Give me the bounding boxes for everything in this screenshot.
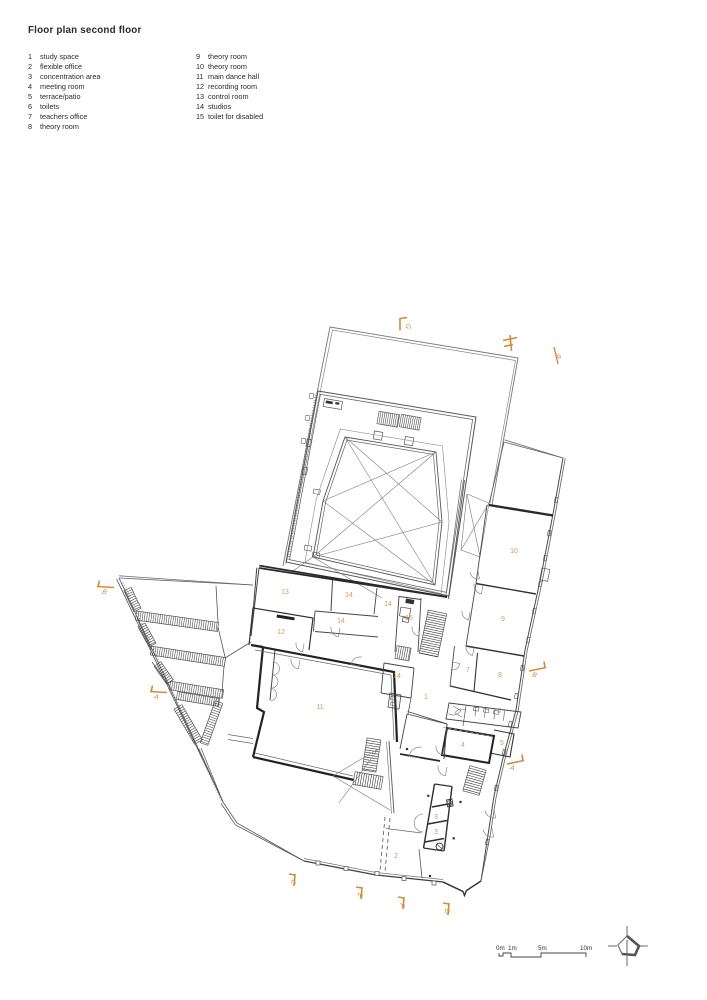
- svg-text:9: 9: [501, 616, 505, 623]
- svg-text:15: 15: [405, 615, 413, 622]
- svg-text:2: 2: [394, 853, 398, 860]
- svg-text:5: 5: [500, 740, 504, 747]
- svg-text:1: 1: [424, 694, 428, 701]
- svg-text:14: 14: [393, 673, 401, 680]
- svg-text:0m: 0m: [496, 945, 505, 952]
- svg-text:10m: 10m: [580, 945, 592, 952]
- svg-text:8: 8: [498, 672, 502, 679]
- svg-text:3: 3: [434, 814, 438, 821]
- svg-text:3: 3: [434, 829, 438, 836]
- svg-text:7: 7: [466, 667, 470, 674]
- svg-text:13: 13: [281, 589, 289, 596]
- svg-text:10: 10: [510, 548, 518, 555]
- svg-text:14: 14: [345, 592, 353, 599]
- svg-text:5m: 5m: [538, 945, 547, 952]
- svg-text:6: 6: [497, 708, 501, 715]
- svg-text:4: 4: [461, 742, 465, 749]
- svg-text:14: 14: [337, 618, 345, 625]
- svg-text:11: 11: [316, 704, 323, 711]
- svg-text:14: 14: [384, 601, 392, 608]
- svg-text:1m: 1m: [508, 945, 517, 952]
- svg-text:12: 12: [277, 629, 285, 636]
